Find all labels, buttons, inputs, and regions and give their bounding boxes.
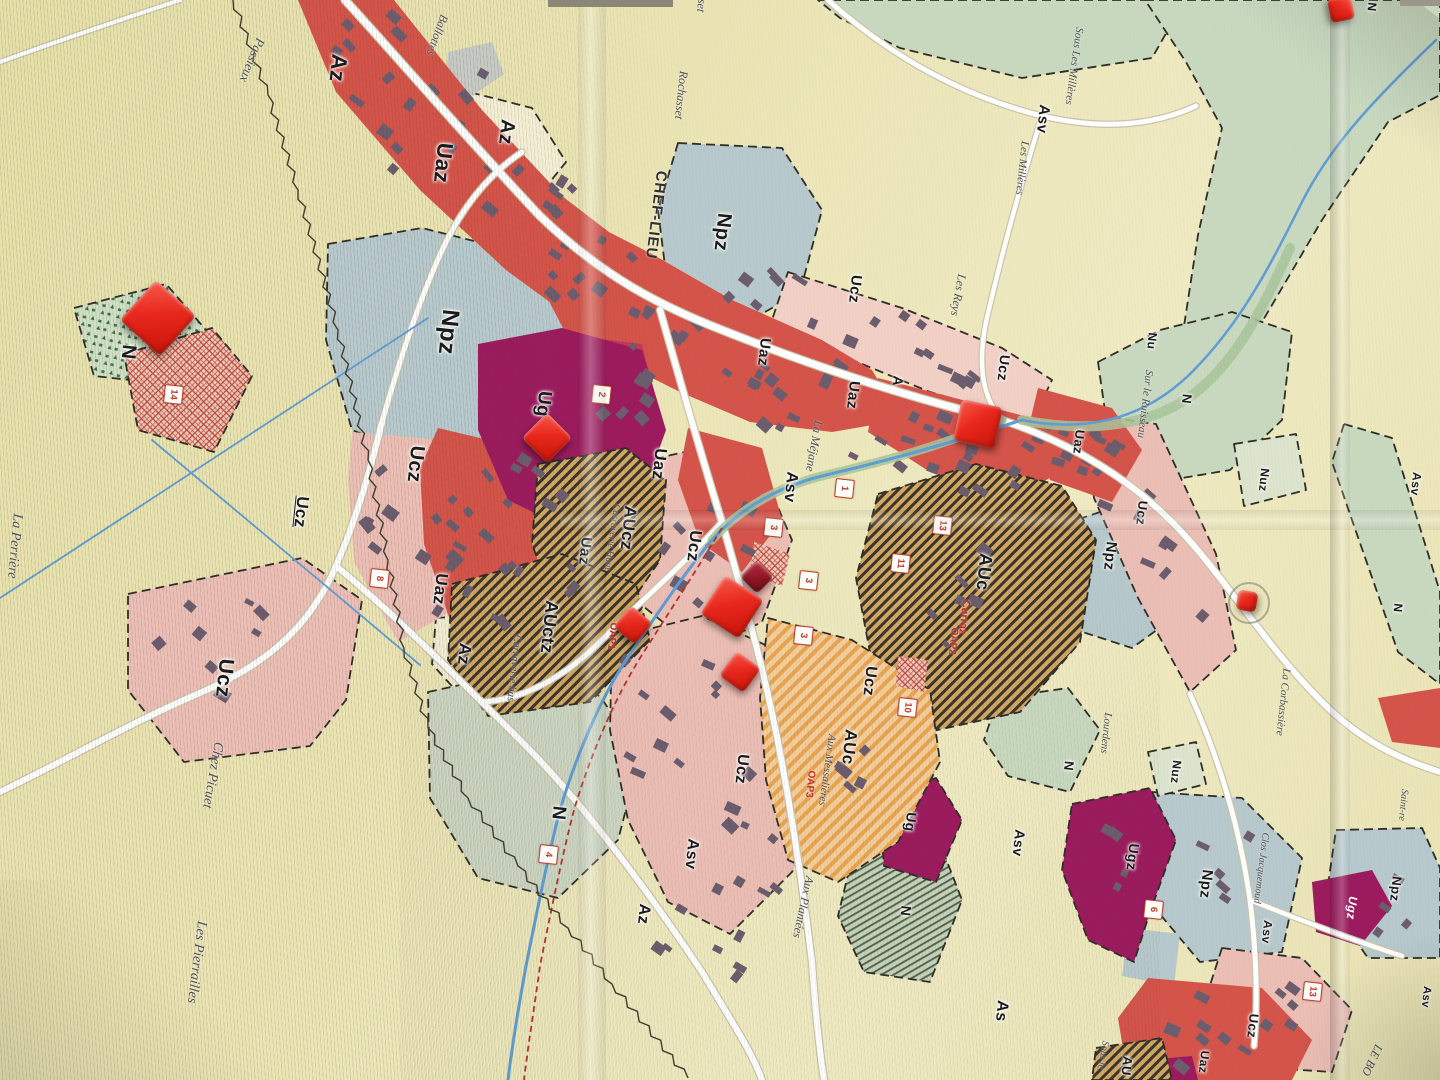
paper-fold [560, 510, 1440, 530]
photo-edge [1400, 0, 1440, 6]
photo-moire-overlay [400, 520, 1160, 1080]
paper-fold [578, 0, 606, 1080]
photo-edge [548, 0, 673, 7]
map-photo: AzAzUazNpzNpzNUczUczUgUazAUczUazUczUazAU… [0, 0, 1440, 1080]
paper-shadow [1290, 930, 1440, 1080]
paper-shadow [0, 880, 280, 1080]
